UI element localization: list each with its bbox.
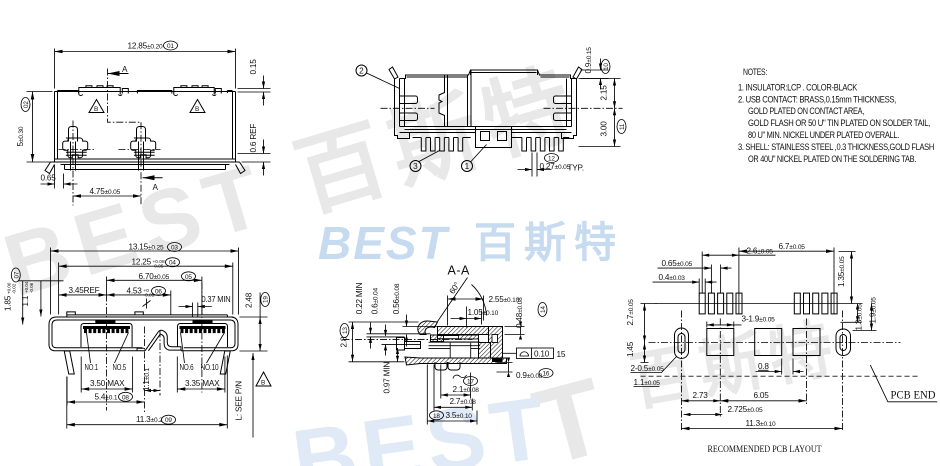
svg-text:0.56±0.08: 0.56±0.08 [392, 283, 401, 314]
svg-text:NO.5: NO.5 [113, 363, 127, 372]
svg-text:0.4±0.03: 0.4±0.03 [659, 273, 686, 282]
svg-text:B: B [261, 380, 265, 387]
svg-text:11: 11 [619, 123, 626, 130]
svg-text:16: 16 [543, 371, 550, 378]
svg-text:1.85: 1.85 [4, 295, 13, 311]
svg-text:A: A [153, 183, 159, 192]
svg-text:0.9±0.15: 0.9±0.15 [584, 47, 593, 74]
svg-text:1.05±0.10: 1.05±0.10 [468, 308, 499, 317]
svg-text:-0.02: -0.02 [12, 283, 17, 294]
svg-text:08: 08 [122, 394, 129, 401]
svg-text:19: 19 [263, 296, 270, 303]
svg-text:NOTES:: NOTES: [743, 67, 767, 77]
svg-text:13: 13 [342, 327, 349, 334]
svg-text:2: 2 [359, 67, 364, 76]
svg-text:L: SEE P/N: L: SEE P/N [235, 381, 244, 421]
svg-text:A: A [122, 65, 128, 74]
svg-text:3.00: 3.00 [600, 121, 609, 137]
svg-text:0.22 MIN: 0.22 MIN [355, 282, 364, 314]
svg-text:11.3±0.2: 11.3±0.2 [136, 415, 163, 424]
svg-text:0.65: 0.65 [41, 174, 57, 183]
svg-text:PCB END: PCB END [891, 390, 936, 402]
svg-text:2-0.5±0.05: 2-0.5±0.05 [631, 364, 665, 373]
svg-text:百斯特: 百斯特 [474, 219, 624, 266]
svg-text:GOLD PLATED ON CONTACT AREA,: GOLD PLATED ON CONTACT AREA, [748, 106, 864, 116]
svg-text:1.45: 1.45 [626, 341, 635, 357]
svg-text:B: B [195, 106, 199, 113]
svg-text:6.05: 6.05 [754, 391, 770, 400]
svg-text:1.35±0.05: 1.35±0.05 [837, 256, 846, 287]
svg-text:2.15: 2.15 [600, 85, 609, 101]
svg-text:11.3±0.10: 11.3±0.10 [746, 419, 777, 428]
svg-text:01: 01 [167, 43, 174, 50]
svg-text:OR 40U" NICKEL PLATED ON THE S: OR 40U" NICKEL PLATED ON THE SOLDERING T… [748, 154, 916, 164]
svg-text:2.725±0.05: 2.725±0.05 [728, 405, 763, 414]
svg-text:0.6 REF: 0.6 REF [249, 124, 258, 153]
svg-text:1.1: 1.1 [21, 295, 30, 306]
svg-text:5.4±0.1: 5.4±0.1 [95, 393, 118, 402]
svg-text:0.8: 0.8 [758, 362, 769, 371]
svg-text:0.6±0.04: 0.6±0.04 [371, 288, 380, 315]
svg-text:4.75±0.05: 4.75±0.05 [90, 187, 121, 196]
svg-text:09: 09 [165, 417, 172, 424]
svg-text:3-1.9±0.05: 3-1.9±0.05 [742, 315, 776, 324]
svg-text:NO.1: NO.1 [85, 363, 99, 372]
svg-text:NO.10: NO.10 [201, 363, 220, 372]
svg-text:6.70±0.05: 6.70±0.05 [139, 272, 170, 281]
svg-text:1. INSULATOR:LCP . COLOR-BLACK: 1. INSULATOR:LCP . COLOR-BLACK [738, 83, 857, 93]
svg-text:2.55±0.10: 2.55±0.10 [489, 295, 520, 304]
svg-text:03: 03 [171, 245, 178, 252]
svg-text:12.85±0.20: 12.85±0.20 [128, 42, 163, 51]
svg-text:0.65±0.05: 0.65±0.05 [662, 259, 693, 268]
svg-text:1.9±0.05: 1.9±0.05 [869, 297, 878, 324]
svg-text:10: 10 [603, 63, 610, 70]
svg-text:2.7±0.05: 2.7±0.05 [626, 299, 635, 326]
svg-text:NO.6: NO.6 [180, 363, 194, 372]
svg-text:1.3±0.05: 1.3±0.05 [855, 304, 864, 331]
svg-text:2.48: 2.48 [245, 292, 254, 308]
svg-text:1.1±0.05: 1.1±0.05 [634, 378, 661, 387]
svg-text:3.45REF: 3.45REF [69, 286, 100, 295]
svg-text:3: 3 [413, 162, 418, 171]
svg-text:04: 04 [169, 260, 176, 267]
svg-text:0.10: 0.10 [534, 350, 550, 359]
svg-text:4.53: 4.53 [127, 286, 143, 295]
svg-text:0.37 MIN: 0.37 MIN [202, 295, 231, 304]
svg-text:1: 1 [465, 162, 470, 171]
svg-text:0.15: 0.15 [249, 59, 258, 75]
svg-text:-0.06: -0.06 [29, 282, 34, 293]
svg-text:BEST: BEST [318, 217, 451, 269]
svg-text:A-A: A-A [448, 264, 471, 278]
svg-text:0.48±0.08: 0.48±0.08 [515, 297, 524, 328]
svg-text:1.1±0.1: 1.1±0.1 [142, 368, 151, 391]
svg-text:2.73: 2.73 [693, 391, 709, 400]
svg-text:02: 02 [23, 101, 30, 108]
svg-text:13.15±0.25: 13.15±0.25 [129, 243, 164, 252]
svg-text:3. SHELL: STAINLESS STEEL ,0.3: 3. SHELL: STAINLESS STEEL ,0.3 THICKNESS… [738, 142, 934, 152]
svg-text:14: 14 [540, 306, 547, 313]
svg-text:07: 07 [13, 271, 20, 278]
svg-text:3.5±0.10: 3.5±0.10 [446, 411, 473, 420]
svg-text:18: 18 [433, 413, 440, 420]
svg-text:80 U" MIN. NICKEL UNDER PLATED: 80 U" MIN. NICKEL UNDER PLATED OVERALL. [748, 130, 899, 140]
svg-text:GOLD FLASH OR 50 U" TIN PLATED: GOLD FLASH OR 50 U" TIN PLATED ON SOLDER… [748, 118, 930, 128]
svg-text:6.7±0.05: 6.7±0.05 [779, 242, 806, 251]
svg-text:12.25: 12.25 [132, 258, 152, 267]
svg-text:-0.05: -0.05 [153, 264, 164, 270]
svg-text:RECOMMENDED PCB LAYOUT: RECOMMENDED PCB LAYOUT [708, 445, 822, 455]
svg-text:2. USB CONTACT: BRASS,0.15mm T: 2. USB CONTACT: BRASS,0.15mm THICKNESS, [738, 95, 896, 105]
svg-text:05: 05 [185, 274, 192, 281]
svg-text:2.1±0.08: 2.1±0.08 [453, 385, 480, 394]
svg-text:3.35 MAX: 3.35 MAX [185, 379, 220, 388]
svg-text:3.50 MAX: 3.50 MAX [90, 379, 125, 388]
svg-text:TYP.: TYP. [568, 164, 584, 173]
svg-text:5±0.30: 5±0.30 [16, 126, 25, 146]
svg-text:0.97 MIN: 0.97 MIN [383, 362, 392, 394]
svg-text:B: B [94, 106, 98, 113]
svg-text:0.27±0.05: 0.27±0.05 [540, 162, 571, 171]
svg-text:06: 06 [155, 288, 162, 295]
svg-text:15: 15 [557, 350, 566, 359]
svg-text:2.7±0.08: 2.7±0.08 [450, 397, 477, 406]
